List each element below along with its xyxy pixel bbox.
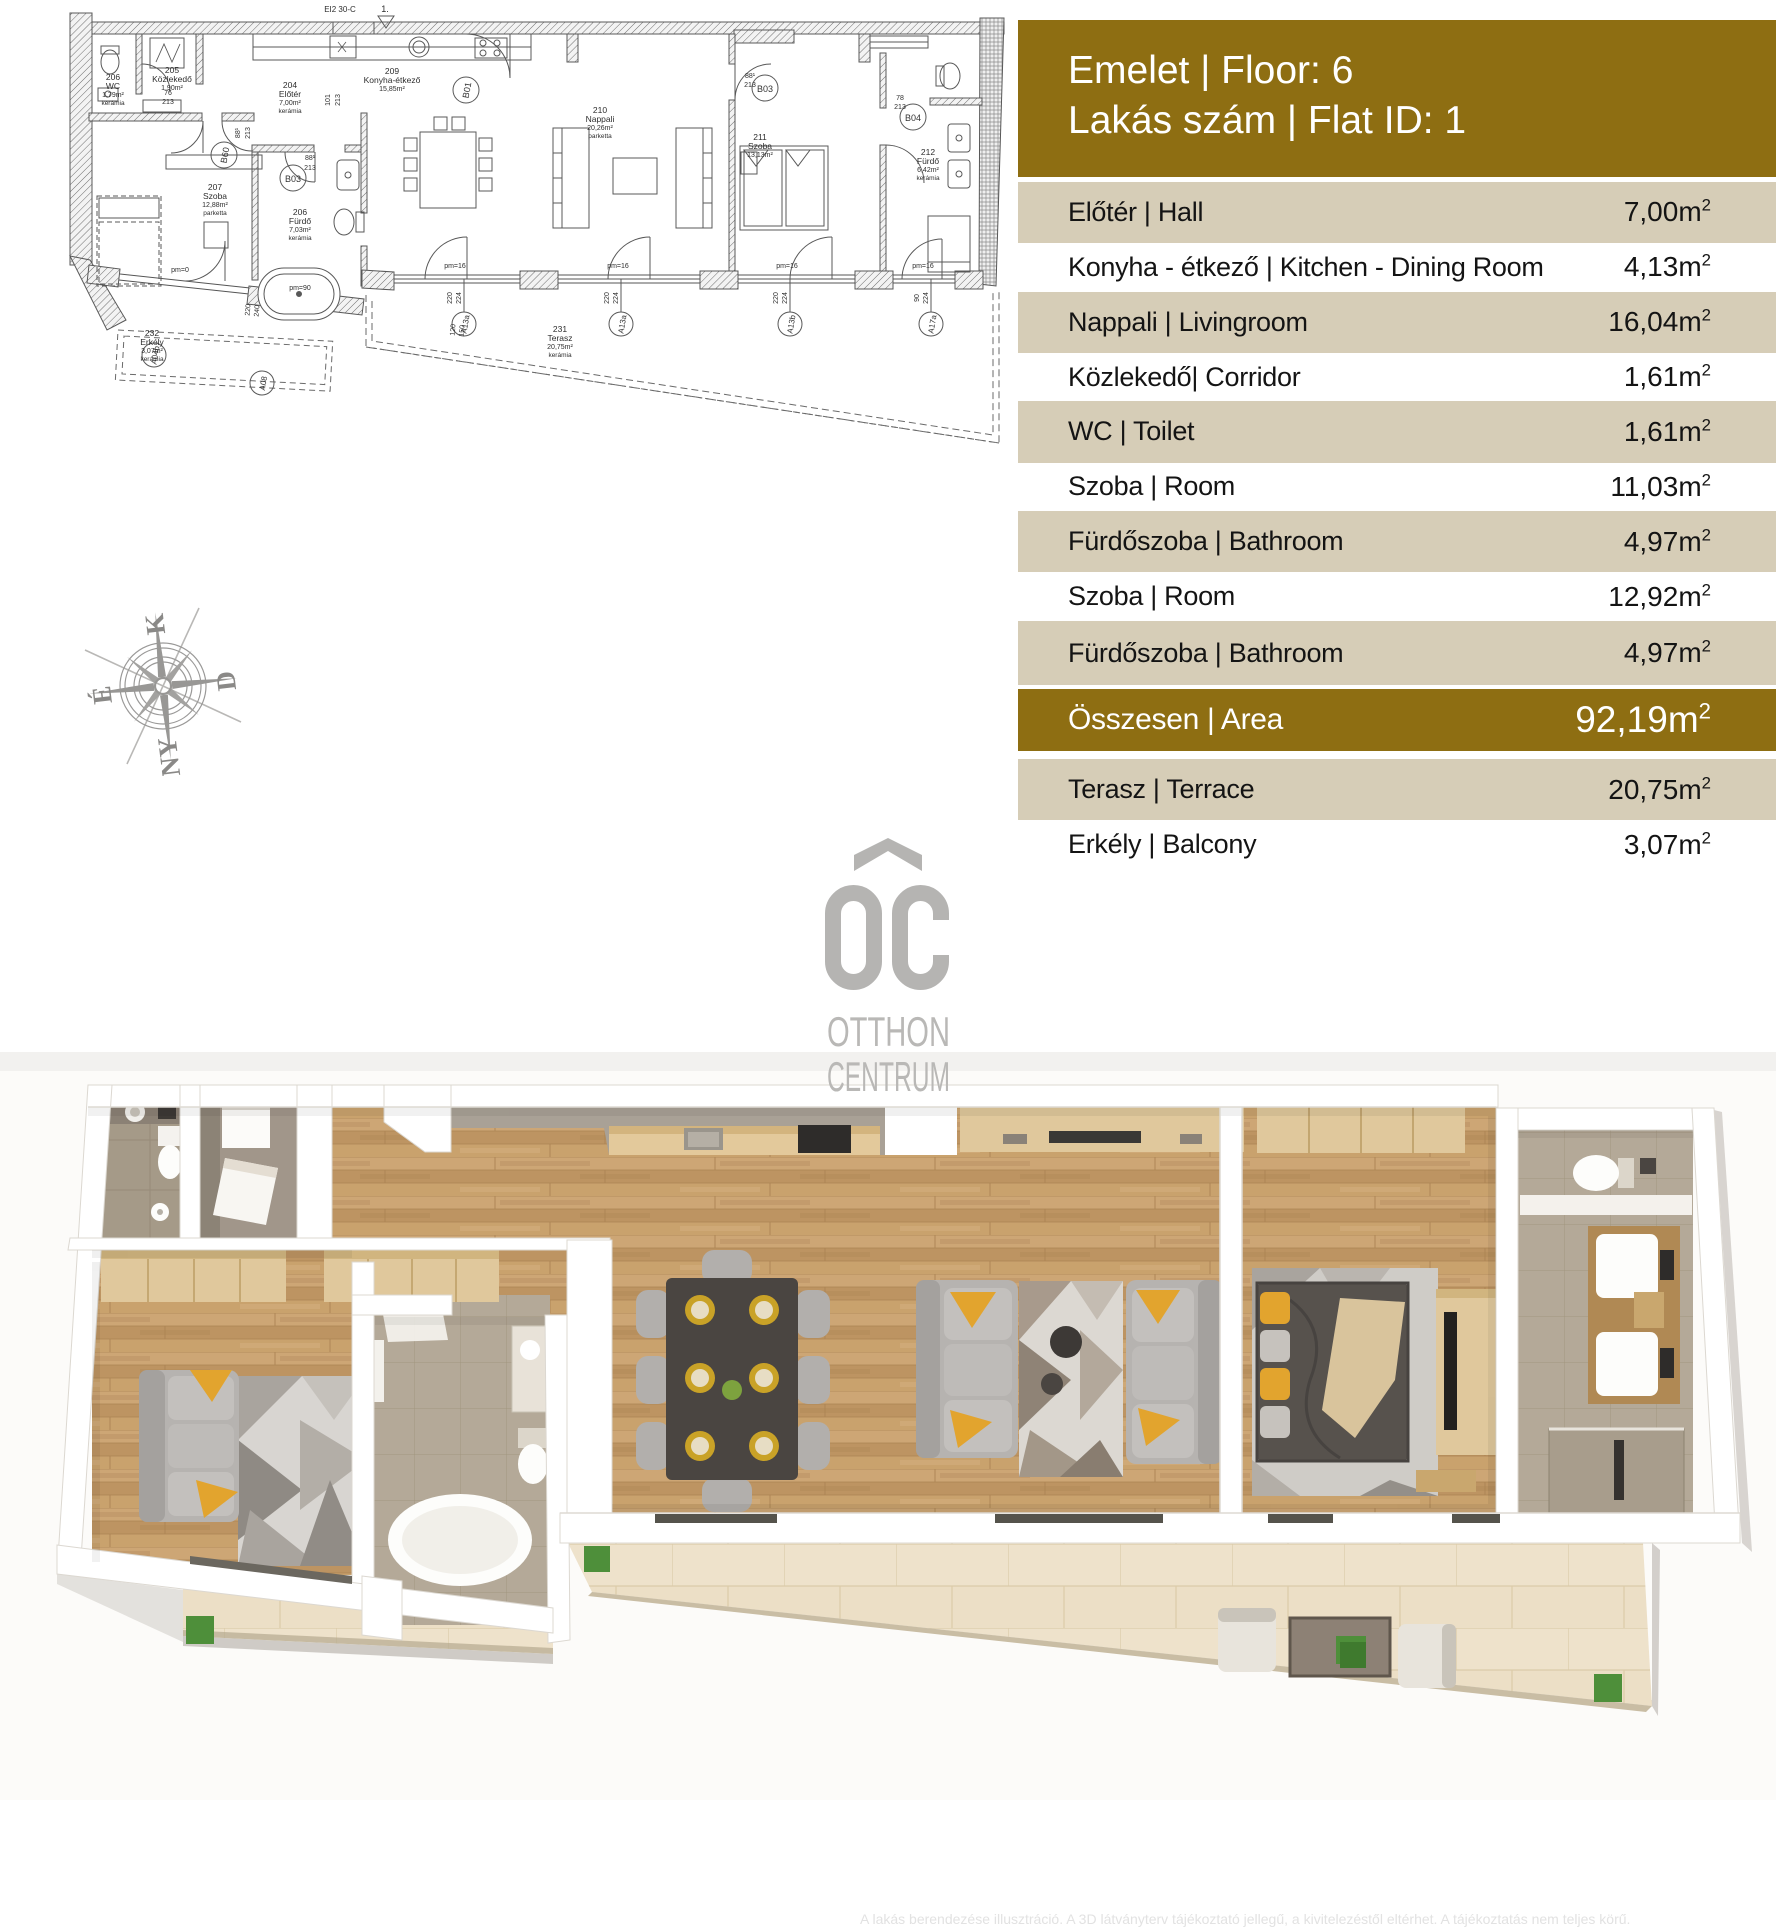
svg-text:pm=16: pm=16	[607, 263, 629, 270]
svg-text:É: É	[86, 684, 118, 706]
svg-text:90: 90	[914, 294, 921, 302]
svg-text:A08: A08	[258, 375, 269, 391]
svg-text:kerámia: kerámia	[140, 356, 164, 363]
svg-text:B01: B01	[461, 81, 474, 99]
svg-text:pm=16: pm=16	[776, 263, 798, 270]
svg-text:224: 224	[613, 292, 620, 304]
svg-text:88¹: 88¹	[745, 73, 756, 80]
svg-text:CENTRUM: CENTRUM	[827, 1053, 950, 1100]
svg-text:kerámia: kerámia	[101, 100, 125, 107]
svg-text:240: 240	[254, 305, 262, 317]
svg-text:220: 220	[604, 292, 611, 304]
svg-text:WC: WC	[106, 81, 120, 91]
svg-text:pm=16: pm=16	[444, 263, 466, 270]
svg-text:B04: B04	[905, 113, 921, 123]
svg-text:B03: B03	[285, 174, 301, 184]
svg-text:Nappali: Nappali	[586, 114, 615, 124]
svg-text:pm=0: pm=0	[171, 267, 189, 274]
svg-text:NY: NY	[152, 736, 187, 776]
svg-text:213: 213	[894, 104, 906, 111]
svg-text:Szoba: Szoba	[748, 141, 772, 151]
svg-text:20,75m²: 20,75m²	[547, 344, 573, 351]
svg-text:76: 76	[164, 90, 172, 97]
svg-text:1.: 1.	[381, 4, 389, 14]
svg-text:220: 220	[447, 292, 454, 304]
svg-text:150: 150	[459, 325, 467, 337]
svg-text:120: 120	[450, 324, 458, 336]
svg-text:78: 78	[896, 95, 904, 102]
svg-text:12,88m²: 12,88m²	[202, 202, 228, 209]
svg-text:3,07m²: 3,07m²	[141, 348, 163, 355]
svg-text:parketta: parketta	[588, 133, 612, 140]
svg-text:15,85m²: 15,85m²	[379, 86, 405, 93]
svg-text:220: 220	[773, 292, 780, 304]
svg-text:213: 213	[744, 82, 756, 89]
svg-text:224: 224	[782, 292, 789, 304]
svg-text:213: 213	[245, 127, 252, 139]
svg-text:Közlekedő: Közlekedő	[152, 74, 192, 84]
svg-text:7,03m²: 7,03m²	[289, 227, 311, 234]
svg-text:EI2 30-C: EI2 30-C	[324, 5, 356, 14]
svg-text:pm=90: pm=90	[289, 285, 311, 292]
svg-text:kerámia: kerámia	[548, 352, 572, 359]
svg-text:Konyha-étkező: Konyha-étkező	[364, 75, 421, 85]
svg-text:213: 213	[304, 165, 316, 172]
svg-text:D: D	[210, 669, 242, 692]
svg-text:13,13m²: 13,13m²	[747, 152, 773, 159]
svg-text:B03: B03	[757, 84, 773, 94]
svg-text:kerámia: kerámia	[916, 175, 940, 182]
svg-text:A13a: A13a	[616, 314, 628, 335]
svg-text:Előtér: Előtér	[279, 89, 301, 99]
svg-text:pm=16: pm=16	[912, 263, 934, 270]
svg-text:OTTHON: OTTHON	[827, 1008, 950, 1055]
svg-text:A13b: A13b	[785, 314, 797, 335]
svg-text:B60: B60	[219, 146, 232, 164]
svg-text:20,26m²: 20,26m²	[587, 125, 613, 132]
svg-text:Szoba: Szoba	[203, 191, 227, 201]
svg-text:Fürdő: Fürdő	[289, 216, 311, 226]
svg-text:88¹: 88¹	[305, 155, 316, 162]
svg-text:kerámia: kerámia	[288, 235, 312, 242]
svg-text:Fürdő: Fürdő	[917, 156, 939, 166]
svg-text:220: 220	[245, 304, 253, 316]
svg-text:K: K	[139, 612, 171, 637]
svg-text:Terasz: Terasz	[547, 333, 572, 343]
svg-text:kerámia: kerámia	[278, 108, 302, 115]
svg-text:224: 224	[923, 292, 930, 304]
svg-text:Erkély: Erkély	[140, 337, 164, 347]
svg-text:213: 213	[335, 94, 342, 106]
svg-text:213: 213	[162, 99, 174, 106]
svg-text:101: 101	[325, 94, 332, 106]
svg-text:7,00m²: 7,00m²	[279, 100, 301, 107]
svg-text:6,42m²: 6,42m²	[917, 167, 939, 174]
svg-text:88¹: 88¹	[235, 127, 242, 138]
svg-text:A17a: A17a	[926, 314, 938, 335]
svg-text:1,79m²: 1,79m²	[102, 92, 124, 99]
svg-text:224: 224	[456, 292, 463, 304]
svg-text:parketta: parketta	[203, 210, 227, 217]
